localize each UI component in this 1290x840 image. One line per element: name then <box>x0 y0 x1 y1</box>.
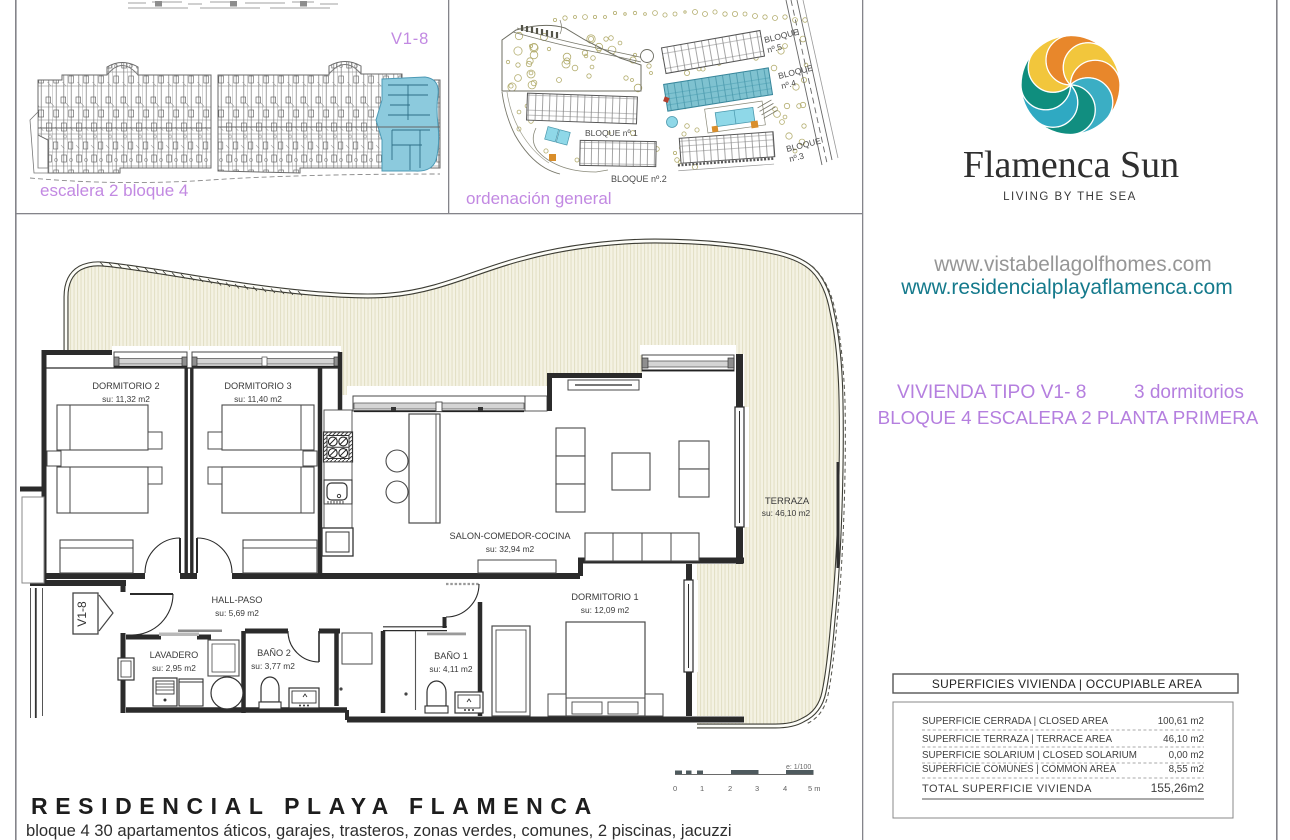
svg-text:SUPERFICIE SOLARIUM | CLOSED S: SUPERFICIE SOLARIUM | CLOSED SOLARIUM <box>922 750 1137 761</box>
svg-text:BLOQUE nº.2: BLOQUE nº.2 <box>611 174 667 184</box>
svg-text:DORMITORIO 2: DORMITORIO 2 <box>92 381 159 391</box>
svg-text:ordenación general: ordenación general <box>466 189 612 208</box>
svg-text:BLOQUE nº.1: BLOQUE nº.1 <box>585 128 638 138</box>
svg-text:3 dormitorios: 3 dormitorios <box>1134 382 1244 403</box>
svg-text:46,10 m2: 46,10 m2 <box>1163 734 1204 745</box>
svg-text:5 m: 5 m <box>808 784 821 793</box>
svg-text:RESIDENCIAL PLAYA FLAMENCA: RESIDENCIAL PLAYA FLAMENCA <box>31 793 599 819</box>
svg-text:DORMITORIO 3: DORMITORIO 3 <box>224 381 291 391</box>
svg-text:bloque 4 30 apartamentos ático: bloque 4 30 apartamentos áticos, garajes… <box>26 821 732 840</box>
svg-text:su: 46,10 m2: su: 46,10 m2 <box>762 508 811 518</box>
svg-text:su: 4,11 m2: su: 4,11 m2 <box>429 664 472 674</box>
svg-text:e: 1/100: e: 1/100 <box>786 764 811 771</box>
svg-text:V1-8: V1-8 <box>75 601 89 627</box>
svg-text:BLOQUE: BLOQUE <box>763 27 800 45</box>
svg-text:100,61 m2: 100,61 m2 <box>1158 716 1204 727</box>
svg-text:SUPERFICIES VIVIENDA | OCCUPIA: SUPERFICIES VIVIENDA | OCCUPIABLE AREA <box>932 677 1202 691</box>
svg-text:3: 3 <box>755 784 759 793</box>
svg-text:SALON-COMEDOR-COCINA: SALON-COMEDOR-COCINA <box>450 531 572 541</box>
svg-text:su: 3,77 m2: su: 3,77 m2 <box>251 661 295 671</box>
svg-text:LIVING BY THE SEA: LIVING BY THE SEA <box>1003 191 1137 203</box>
svg-text:BAÑO 1: BAÑO 1 <box>434 651 468 661</box>
svg-text:DORMITORIO 1: DORMITORIO 1 <box>571 592 638 602</box>
svg-text:HALL-PASO: HALL-PASO <box>212 595 263 605</box>
svg-text:escalera 2 bloque 4: escalera 2 bloque 4 <box>40 181 188 200</box>
svg-text:V1-8: V1-8 <box>391 30 429 48</box>
svg-text:155,26m2: 155,26m2 <box>1151 781 1205 795</box>
svg-text:4: 4 <box>783 784 787 793</box>
svg-text:TOTAL SUPERFICIE VIVIENDA: TOTAL SUPERFICIE VIVIENDA <box>922 783 1092 795</box>
svg-text:SUPERFICIE CERRADA | CLOSED AR: SUPERFICIE CERRADA | CLOSED AREA <box>922 716 1108 727</box>
svg-text:SUPERFICIE COMUNES | COMMON AR: SUPERFICIE COMUNES | COMMON AREA <box>922 764 1117 775</box>
svg-text:su: 11,40 m2: su: 11,40 m2 <box>234 394 282 404</box>
svg-text:2: 2 <box>728 784 732 793</box>
svg-text:su: 5,69 m2: su: 5,69 m2 <box>215 608 259 618</box>
svg-text:LAVADERO: LAVADERO <box>150 650 199 660</box>
svg-text:su: 2,95 m2: su: 2,95 m2 <box>152 663 196 673</box>
svg-text:8,55 m2: 8,55 m2 <box>1169 764 1204 775</box>
svg-text:0: 0 <box>673 784 677 793</box>
svg-text:su: 32,94 m2: su: 32,94 m2 <box>486 544 535 554</box>
svg-text:su: 12,09 m2: su: 12,09 m2 <box>581 605 630 615</box>
svg-text:Flamenca Sun: Flamenca Sun <box>963 144 1179 186</box>
svg-text:VIVIENDA TIPO V1- 8: VIVIENDA TIPO V1- 8 <box>897 382 1086 403</box>
svg-text:www.vistabellagolfhomes.com: www.vistabellagolfhomes.com <box>933 253 1211 276</box>
svg-text:su: 11,32 m2: su: 11,32 m2 <box>102 394 150 404</box>
svg-text:www.residencialplayaflamenca.c: www.residencialplayaflamenca.com <box>900 276 1232 299</box>
svg-text:0,00 m2: 0,00 m2 <box>1169 750 1204 761</box>
svg-text:TERRAZA: TERRAZA <box>765 496 810 507</box>
svg-text:SUPERFICIE TERRAZA | TERRACE: SUPERFICIE TERRAZA | TERRACE AREA <box>922 734 1112 745</box>
svg-text:1: 1 <box>700 784 704 793</box>
svg-text:BAÑO 2: BAÑO 2 <box>257 648 291 658</box>
svg-text:BLOQUE 4 ESCALERA 2 PLANTA P: BLOQUE 4 ESCALERA 2 PLANTA PRIMERA <box>878 407 1259 428</box>
